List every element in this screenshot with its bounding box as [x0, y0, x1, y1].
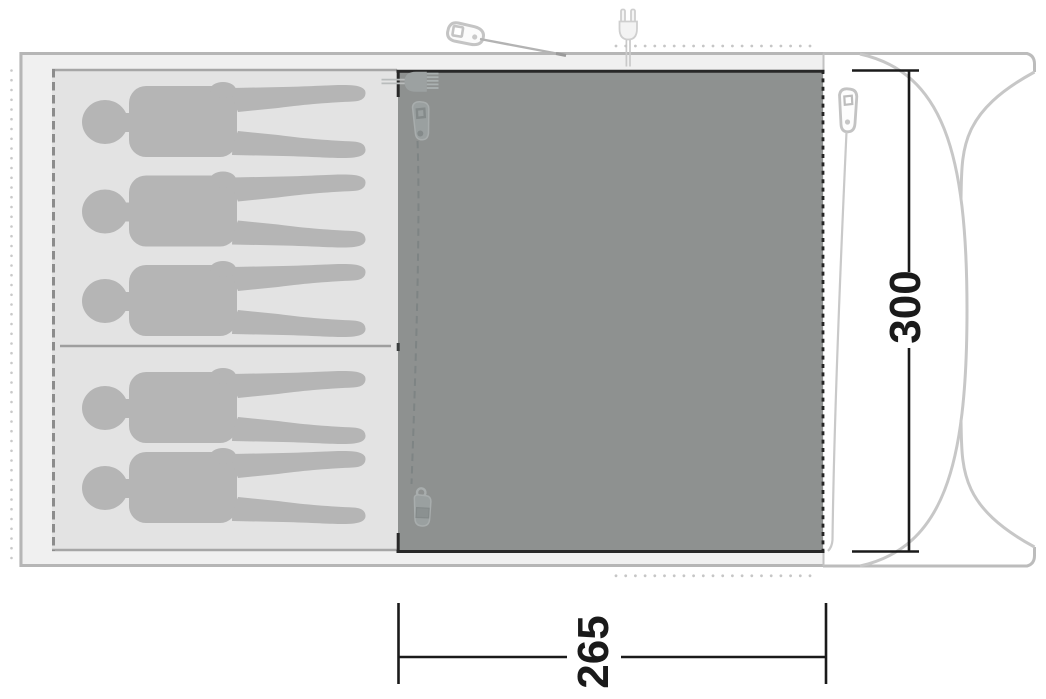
- svg-text:265: 265: [569, 615, 618, 688]
- svg-text:300: 300: [881, 270, 930, 343]
